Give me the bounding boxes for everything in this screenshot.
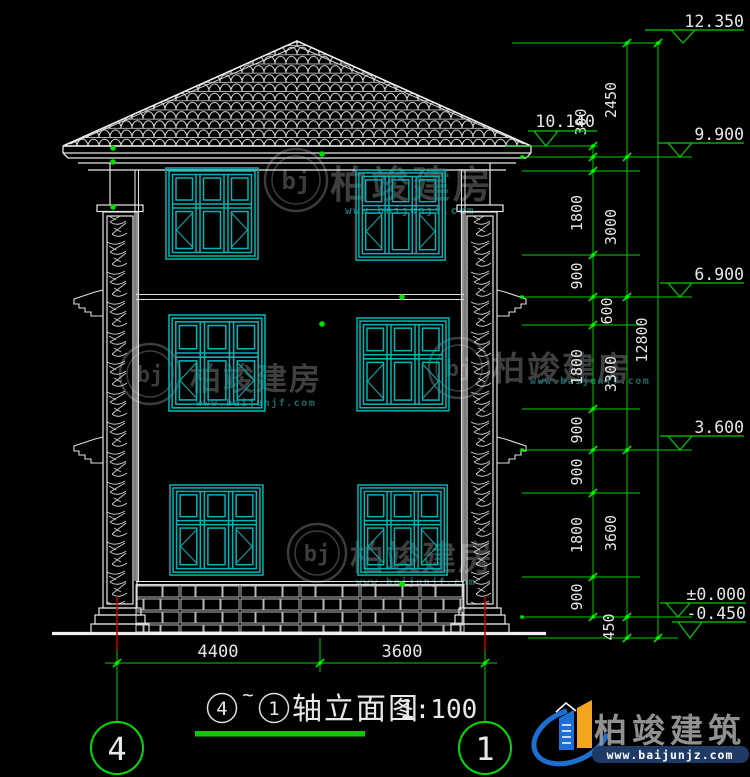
dimension-chain-overall: 12800 <box>633 39 662 642</box>
dimension-bottom: 4400 3600 <box>105 642 497 667</box>
cad-canvas: bj 柏竣建房 www.baijunjf.com bj 柏竣建房 www.bai… <box>0 0 750 777</box>
title-underline <box>195 731 365 737</box>
level-symbol <box>660 436 744 450</box>
eave-bracket-right-upper <box>497 290 526 316</box>
dim-label: 3300 <box>602 356 620 392</box>
dim-label-overall: 12800 <box>633 317 651 362</box>
dim-label: 600 <box>598 297 616 324</box>
level-symbol <box>660 283 744 297</box>
axis-bubble-left: 4 <box>107 730 126 768</box>
dim-label: 900 <box>568 416 586 443</box>
axis-bubbles: 4 1 <box>91 722 511 774</box>
floor-band <box>136 295 464 300</box>
eave-bracket-left-upper <box>74 290 103 316</box>
column-left <box>91 163 149 633</box>
dim-label: 900 <box>568 458 586 485</box>
window-3f-left <box>166 168 258 259</box>
axis-bubble-right: 1 <box>475 730 494 768</box>
watermark-monogram: bj <box>304 542 331 567</box>
dim-label: 3000 <box>602 209 620 245</box>
dim-bottom-left: 4400 <box>198 642 239 662</box>
level-ridge: 12.350 <box>684 12 744 31</box>
level-symbol <box>658 143 744 157</box>
level-floor3: 6.900 <box>694 265 744 284</box>
title-axis-b: 1 <box>268 698 279 720</box>
level-eave-upper: 10.140 <box>535 112 595 131</box>
level-zero: ±0.000 <box>686 585 746 604</box>
dim-label: 450 <box>600 613 618 640</box>
window-2f-right <box>357 318 449 411</box>
title-tilde: ~ <box>242 684 253 706</box>
watermark-monogram: bj <box>137 363 164 388</box>
drawing-title: ~ 4 1 轴立面图 1:100 <box>195 684 477 737</box>
elevation-drawing: bj 柏竣建房 www.baijunjf.com bj 柏竣建房 www.bai… <box>0 0 750 777</box>
dim-label: 3600 <box>602 515 620 551</box>
watermark-top: bj 柏竣建房 www.baijunjf.com <box>265 149 494 217</box>
dim-bottom-right: 3600 <box>382 642 423 662</box>
roof <box>63 41 531 146</box>
dim-label: 900 <box>568 262 586 289</box>
dim-label: 1800 <box>568 517 586 553</box>
dim-label: 2450 <box>602 82 620 118</box>
watermark-url: www.baijunjf.com <box>530 375 650 387</box>
dim-label: 1800 <box>568 195 586 231</box>
dimension-chain-storey: 2450 3000 3300 3600 450 <box>600 39 631 642</box>
title-axis-a: 4 <box>216 698 227 720</box>
window-1f-left <box>170 485 263 575</box>
brand-building-orange-icon <box>577 700 592 748</box>
level-floor2: 3.600 <box>694 418 744 437</box>
brand-building-blue-icon <box>559 710 574 750</box>
brand-url: www.baijunjz.com <box>607 748 734 762</box>
watermark-name: 柏竣建房 <box>190 362 322 398</box>
level-ground: -0.450 <box>686 604 746 623</box>
extension-lines <box>505 43 692 638</box>
level-eave: 9.900 <box>694 125 744 144</box>
level-symbol <box>672 622 746 638</box>
eave-bracket-left-lower <box>74 437 103 463</box>
stone-base <box>136 585 464 632</box>
brand-name: 柏竣建筑 <box>594 711 746 750</box>
watermark-monogram: bj <box>282 167 311 195</box>
dim-label: 900 <box>568 583 586 610</box>
title-scale: 1:100 <box>399 695 477 725</box>
brand-logo: 柏竣建筑 www.baijunjz.com <box>525 697 749 774</box>
dim-label: 1800 <box>568 349 586 385</box>
